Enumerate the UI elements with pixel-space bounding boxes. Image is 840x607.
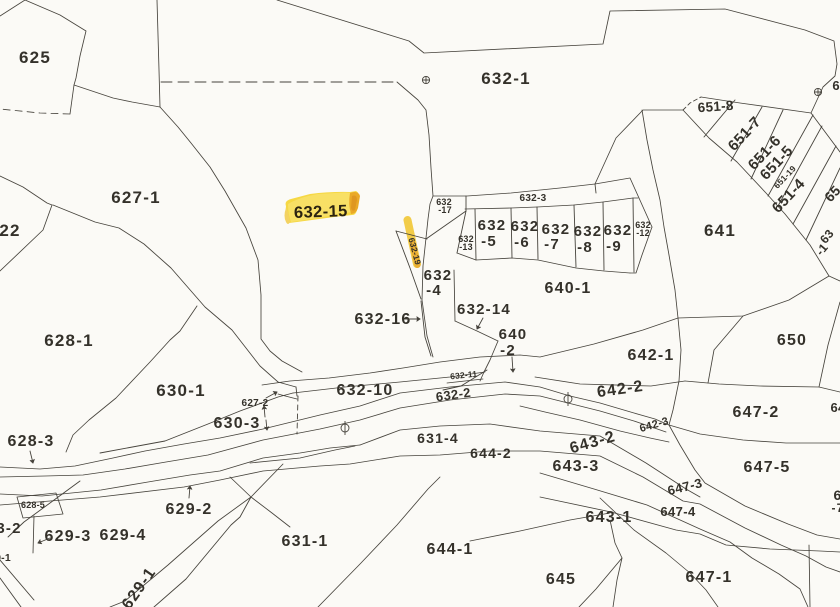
svg-text:642-1: 642-1	[628, 347, 675, 364]
svg-text:629-3: 629-3	[45, 528, 92, 545]
svg-text:650: 650	[777, 332, 807, 349]
svg-text:630-3: 630-3	[214, 415, 261, 432]
svg-text:632-15: 632-15	[294, 202, 348, 222]
svg-text:640-1: 640-1	[545, 280, 592, 297]
svg-text:647-4: 647-4	[660, 504, 696, 519]
svg-text:65: 65	[832, 78, 840, 93]
svg-text:628-5: 628-5	[21, 500, 45, 510]
svg-text:64: 64	[830, 400, 840, 415]
svg-text:632: 632	[574, 223, 603, 240]
svg-text:631-4: 631-4	[417, 430, 459, 446]
svg-text:-12: -12	[636, 228, 650, 238]
svg-text:9-1: 9-1	[0, 552, 11, 564]
svg-text:-6: -6	[514, 234, 530, 251]
svg-text:3-2: 3-2	[0, 520, 22, 537]
svg-text:644-2: 644-2	[470, 445, 512, 461]
svg-text:645: 645	[546, 571, 576, 588]
svg-text:643-1: 643-1	[586, 509, 633, 526]
svg-text:628-3: 628-3	[8, 433, 55, 450]
svg-text:625: 625	[19, 48, 51, 67]
svg-text:643-3: 643-3	[553, 458, 600, 475]
svg-text:647-1: 647-1	[686, 569, 733, 586]
svg-text:628-1: 628-1	[44, 331, 93, 350]
svg-text:632-3: 632-3	[519, 193, 546, 204]
svg-text:647-2: 647-2	[733, 404, 780, 421]
svg-text:631-1: 631-1	[282, 533, 329, 550]
svg-text:-9: -9	[606, 238, 622, 255]
svg-text:632: 632	[511, 218, 540, 235]
svg-text:640: 640	[499, 326, 528, 343]
svg-text:-7: -7	[831, 501, 840, 515]
svg-text:-7: -7	[544, 236, 560, 253]
svg-text:629-2: 629-2	[166, 501, 213, 518]
svg-text:-2: -2	[500, 342, 516, 359]
svg-text:632: 632	[478, 217, 507, 234]
svg-text:627-1: 627-1	[111, 188, 160, 207]
svg-text:630-1: 630-1	[156, 381, 205, 400]
svg-text:629-4: 629-4	[100, 527, 147, 544]
svg-text:641: 641	[704, 221, 736, 240]
svg-text:632-1: 632-1	[481, 69, 530, 88]
svg-text:-13: -13	[459, 242, 473, 252]
svg-text:632-16: 632-16	[354, 311, 411, 328]
svg-text:627-2: 627-2	[241, 398, 268, 409]
svg-text:22: 22	[0, 221, 21, 240]
svg-text:632-14: 632-14	[457, 301, 511, 318]
svg-text:651-8: 651-8	[697, 98, 734, 115]
svg-text:-4: -4	[426, 282, 442, 299]
svg-text:647-5: 647-5	[744, 459, 791, 476]
svg-text:644-1: 644-1	[427, 541, 474, 558]
svg-text:-17: -17	[438, 205, 452, 215]
svg-text:-5: -5	[481, 233, 497, 250]
svg-text:-8: -8	[577, 239, 593, 256]
svg-text:632: 632	[604, 222, 633, 239]
svg-text:632-10: 632-10	[336, 382, 393, 399]
